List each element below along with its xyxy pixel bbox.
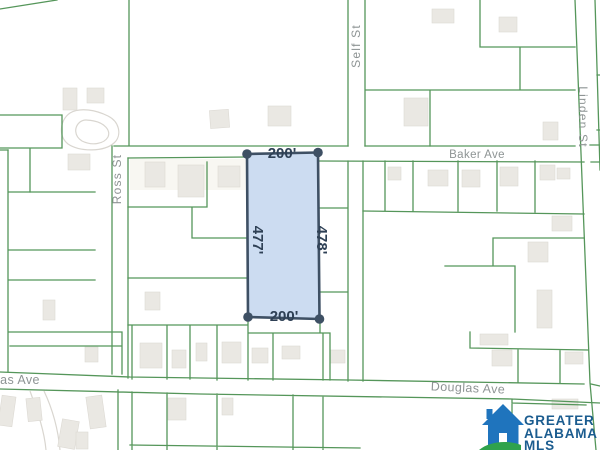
corner-marker-bottom-left bbox=[243, 312, 253, 322]
building-footprint bbox=[557, 168, 570, 179]
corner-marker-top-left bbox=[242, 149, 252, 159]
dimension-label-right: 478' bbox=[313, 226, 330, 255]
dimension-label-top: 200' bbox=[268, 145, 297, 162]
building-footprint bbox=[76, 432, 88, 449]
building-footprint bbox=[222, 398, 233, 415]
building-footprint bbox=[543, 122, 558, 140]
building-footprint bbox=[428, 170, 448, 186]
building-footprint bbox=[330, 350, 345, 363]
street-label-douglas-ave-partial: las Ave bbox=[0, 373, 40, 387]
mls-logo: GREATER ALABAMA MLS bbox=[479, 404, 598, 450]
street-label-self-st: Self St bbox=[349, 24, 363, 68]
logo-text-line3: MLS bbox=[524, 438, 555, 450]
building-footprint bbox=[196, 343, 207, 361]
building-footprint bbox=[145, 292, 160, 310]
building-footprint bbox=[145, 162, 165, 187]
building-footprint bbox=[462, 170, 480, 187]
building-footprint bbox=[222, 342, 241, 363]
building-footprint bbox=[565, 352, 583, 364]
building-footprint bbox=[68, 154, 90, 170]
logo-swoosh bbox=[479, 442, 521, 450]
building-footprint bbox=[404, 98, 428, 126]
building-footprint bbox=[388, 167, 401, 180]
dimension-label-left: 477' bbox=[249, 226, 266, 255]
building-footprint bbox=[26, 397, 42, 421]
building-footprint bbox=[178, 165, 204, 197]
building-footprint bbox=[282, 346, 300, 359]
corner-marker-top-right bbox=[313, 148, 323, 158]
building-footprint bbox=[537, 290, 552, 328]
corner-marker-bottom-right bbox=[315, 314, 325, 324]
map-canvas: 200' 200' 477' 478' Baker Ave Douglas Av… bbox=[0, 0, 600, 450]
street-label-ross-st: Ross St bbox=[110, 154, 124, 204]
building-footprint bbox=[140, 343, 162, 368]
cul-de-sac-inner-curve bbox=[76, 120, 109, 144]
street-label-douglas-ave: Douglas Ave bbox=[431, 379, 506, 396]
center-block-lines bbox=[128, 161, 363, 381]
building-footprint bbox=[172, 350, 186, 368]
building-footprint bbox=[87, 88, 104, 103]
building-footprint bbox=[552, 216, 572, 231]
building-footprint bbox=[499, 17, 517, 32]
building-footprint bbox=[43, 300, 55, 320]
building-footprint bbox=[268, 106, 291, 126]
building-footprint bbox=[209, 109, 229, 128]
street-label-baker-ave: Baker Ave bbox=[449, 149, 505, 161]
building-footprint bbox=[252, 348, 268, 363]
building-footprint bbox=[63, 88, 77, 110]
east-block-lines bbox=[363, 161, 588, 383]
building-footprint bbox=[85, 347, 98, 362]
building-footprint bbox=[218, 166, 240, 187]
building-footprint bbox=[500, 167, 518, 186]
building-footprint bbox=[86, 395, 106, 429]
building-footprint bbox=[528, 242, 548, 262]
mls-map-view: 200' 200' 477' 478' Baker Ave Douglas Av… bbox=[0, 0, 600, 450]
building-footprint bbox=[492, 350, 512, 366]
dimension-label-bottom: 200' bbox=[270, 308, 299, 325]
building-footprint bbox=[0, 395, 16, 427]
building-footprint bbox=[540, 165, 555, 180]
street-label-linden-st: Linden St bbox=[576, 86, 590, 148]
building-footprint bbox=[432, 9, 454, 23]
building-footprint bbox=[168, 398, 186, 420]
building-footprint bbox=[480, 334, 508, 345]
